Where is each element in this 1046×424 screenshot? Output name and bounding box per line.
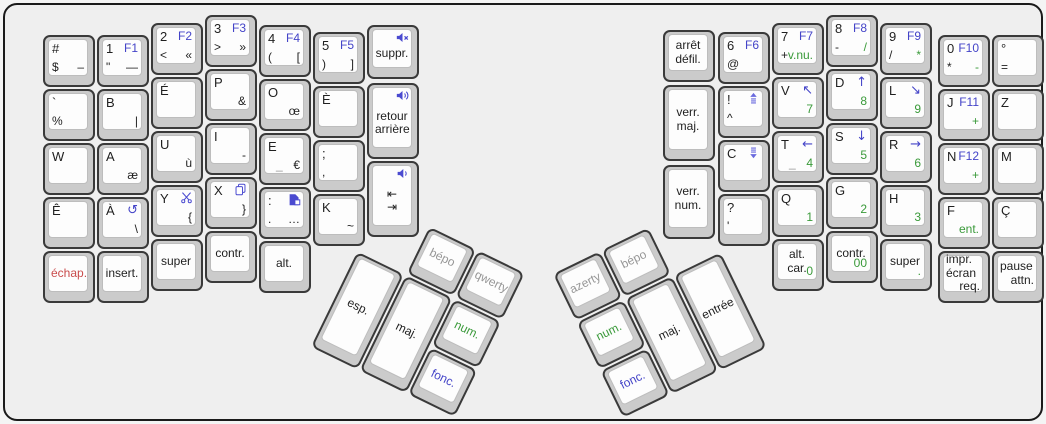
key-layer-num-left-cap: num. bbox=[441, 305, 493, 356]
key-3[interactable]: 3F3>» bbox=[205, 15, 257, 67]
key-dollar-label-tl: # bbox=[52, 42, 59, 55]
key-j-label-br: + bbox=[972, 115, 979, 127]
key-x[interactable]: X} bbox=[205, 177, 257, 229]
key-semicolon-label-tl: ; bbox=[322, 147, 326, 160]
key-c-cap: C bbox=[723, 144, 763, 181]
key-t-label-bc: _ bbox=[789, 157, 796, 169]
key-g-label-tl: G bbox=[835, 184, 845, 197]
key-3-label-tl: 3 bbox=[214, 22, 221, 35]
key-print-screen-line: impr. bbox=[946, 253, 980, 266]
key-space-line: esp. bbox=[340, 293, 376, 320]
key-t-cap: T←_4 bbox=[777, 135, 817, 172]
key-a-grave-label-tr: ↺ bbox=[127, 204, 138, 217]
key-e[interactable]: E_€ bbox=[259, 133, 311, 185]
key-super-left-cap: super bbox=[156, 243, 196, 280]
key-w-cap: W bbox=[48, 147, 88, 184]
key-1-label-tl: 1 bbox=[106, 42, 113, 55]
key-a-cap: Aæ bbox=[102, 147, 142, 184]
key-alt-left-cap: alt. bbox=[264, 245, 304, 282]
key-2-label-tl: 2 bbox=[160, 30, 167, 43]
key-j-label-tl: J bbox=[947, 96, 954, 109]
key-colon-label-br: … bbox=[288, 213, 300, 225]
key-3-label-bl: > bbox=[214, 41, 221, 53]
key-tab-cap: ⇤⇥ bbox=[372, 165, 412, 226]
key-o-cap: Oœ bbox=[264, 83, 304, 120]
key-t[interactable]: T←_4 bbox=[772, 131, 824, 183]
key-layer-num-left-center-label: num. bbox=[442, 306, 491, 354]
key-semicolon[interactable]: ;, bbox=[313, 140, 365, 192]
key-q[interactable]: Q1 bbox=[772, 185, 824, 237]
key-backspace-line: arrière bbox=[375, 123, 409, 136]
key-pause[interactable]: pauseattn. bbox=[992, 251, 1044, 303]
key-semicolon-cap: ;, bbox=[318, 144, 358, 181]
key-u[interactable]: Uù bbox=[151, 131, 203, 183]
key-z-cap: Z bbox=[997, 93, 1037, 130]
key-6-label-tr: F6 bbox=[745, 39, 759, 51]
key-altgr-line: alt. bbox=[780, 248, 814, 261]
key-super-right-line: super bbox=[888, 255, 922, 268]
key-num-lock-center-label: verr.num. bbox=[669, 170, 707, 227]
key-2-cap: 2F2<« bbox=[156, 27, 196, 64]
key-l[interactable]: L↘9 bbox=[880, 77, 932, 129]
keyboard-case: #$–`%WÊéchap.1F1"—B|AæÀ↺\insert.2F2<«ÉUù… bbox=[3, 3, 1043, 421]
key-layer-qwerty-line: qwerty bbox=[472, 268, 508, 295]
key-e-cap: E_€ bbox=[264, 137, 304, 174]
key-layer-fn-left-center-label: fonc. bbox=[419, 355, 468, 403]
key-delete-line: suppr. bbox=[375, 47, 409, 60]
key-7[interactable]: 7F7+v.nu. bbox=[772, 23, 824, 75]
copy-icon bbox=[234, 183, 247, 196]
key-tab[interactable]: ⇤⇥ bbox=[367, 161, 419, 237]
key-9[interactable]: 9F9/* bbox=[880, 23, 932, 75]
key-9-label-tr: F9 bbox=[907, 30, 921, 42]
key-6-cap: 6F6@ bbox=[723, 36, 763, 73]
key-q-label-tl: Q bbox=[781, 192, 791, 205]
key-7-label-br: v.nu. bbox=[788, 49, 813, 61]
key-super-right[interactable]: .super bbox=[880, 239, 932, 291]
key-d-label-tr: ↑ bbox=[856, 76, 867, 89]
key-y[interactable]: Y{ bbox=[151, 185, 203, 237]
key-apostrophe-label-bl: ' bbox=[727, 220, 729, 232]
key-percent-label-bl: % bbox=[52, 115, 63, 127]
key-colon-label-tl: : bbox=[268, 194, 272, 207]
key-n-cap: NF12+ bbox=[943, 147, 983, 184]
key-5-label-bl: ) bbox=[322, 58, 326, 70]
key-i[interactable]: I- bbox=[205, 123, 257, 175]
key-layer-bepo-left-line: bépo bbox=[424, 244, 460, 271]
key-tab-line: ⇤ bbox=[375, 188, 409, 201]
key-t-label-tl: T bbox=[781, 138, 789, 151]
key-layer-fn-right-cap: fonc. bbox=[607, 355, 659, 406]
key-delete-cap: suppr. bbox=[372, 29, 412, 68]
key-print-screen-center-label: impr.écranreq. bbox=[944, 256, 982, 291]
key-layer-fn-right-line: fonc. bbox=[614, 367, 650, 394]
key-h[interactable]: H3 bbox=[880, 185, 932, 237]
key-insert-center-label: insert. bbox=[103, 256, 141, 291]
key-dollar-label-br: – bbox=[77, 61, 84, 73]
key-f-cap: Fent. bbox=[943, 201, 983, 238]
key-p-label-tl: P bbox=[214, 76, 223, 89]
key-e-acute-label-tl: É bbox=[160, 84, 169, 97]
key-layer-azerty-cap: azerty bbox=[559, 258, 611, 309]
key-layer-bepo-left-center-label: bépo bbox=[417, 234, 466, 282]
key-scroll-lock-line: défil. bbox=[671, 53, 705, 66]
key-v-label-tr: ↖ bbox=[802, 84, 813, 97]
key-z[interactable]: Z bbox=[992, 89, 1044, 141]
key-4-cap: 4F4([ bbox=[264, 29, 304, 66]
key-scroll-lock-line: arrêt bbox=[671, 39, 705, 52]
key-9-cap: 9F9/* bbox=[885, 27, 925, 64]
key-8[interactable]: 8F8-/ bbox=[826, 15, 878, 67]
key-u-label-br: ù bbox=[185, 157, 192, 169]
key-layer-bepo-right-line: bépo bbox=[616, 246, 652, 273]
key-e-label-bc: _ bbox=[276, 159, 283, 171]
key-caps-lock-cap: verr.maj. bbox=[668, 89, 708, 150]
key-d[interactable]: D↑8 bbox=[826, 69, 878, 121]
key-t-label-br: 4 bbox=[806, 157, 813, 169]
key-insert-line: insert. bbox=[105, 267, 139, 280]
key-2-label-tr: F2 bbox=[178, 30, 192, 42]
key-c-label-tl: C bbox=[727, 147, 736, 160]
key-4-label-tr: F4 bbox=[286, 32, 300, 44]
key-h-cap: H3 bbox=[885, 189, 925, 226]
key-escape[interactable]: échap. bbox=[43, 251, 95, 303]
key-ctrl-right[interactable]: 00contr. bbox=[826, 231, 878, 283]
key-2[interactable]: 2F2<« bbox=[151, 23, 203, 75]
key-9-label-tl: 9 bbox=[889, 30, 896, 43]
key-4-label-bl: ( bbox=[268, 51, 272, 63]
key-5-label-tr: F5 bbox=[340, 39, 354, 51]
key-exclamation-label-tl: ! bbox=[727, 93, 731, 106]
key-altgr[interactable]: 0alt.car. bbox=[772, 239, 824, 291]
volume-up-icon bbox=[396, 89, 409, 102]
key-a-grave-cap: À↺\ bbox=[102, 201, 142, 238]
key-s[interactable]: S↓5 bbox=[826, 123, 878, 175]
key-layer-azerty-line: azerty bbox=[567, 270, 603, 297]
key-l-label-tr: ↘ bbox=[910, 84, 921, 97]
key-r-label-br: 6 bbox=[914, 157, 921, 169]
key-e-grave-label-tl: È bbox=[322, 93, 331, 106]
key-super-right-cap: .super bbox=[885, 243, 925, 280]
key-layer-azerty-center-label: azerty bbox=[561, 259, 610, 307]
key-scroll-lock-cap: arrêtdéfil. bbox=[668, 34, 708, 71]
key-equals-label-tl: ° bbox=[1001, 42, 1006, 55]
key-p[interactable]: P& bbox=[205, 69, 257, 121]
key-r-cap: R→6 bbox=[885, 135, 925, 172]
key-e-label-tl: E bbox=[268, 140, 277, 153]
key-altgr-line: car. bbox=[780, 262, 814, 275]
key-alt-left-line: alt. bbox=[267, 257, 301, 270]
key-p-cap: P& bbox=[210, 73, 250, 110]
key-scroll-lock-center-label: arrêtdéfil. bbox=[669, 35, 707, 70]
key-percent-label-tl: ` bbox=[52, 96, 56, 109]
key-v-label-br: 7 bbox=[806, 103, 813, 115]
key-3-cap: 3F3>» bbox=[210, 19, 250, 56]
key-g-cap: G2 bbox=[831, 181, 871, 218]
key-num-lock-line: num. bbox=[671, 199, 705, 212]
key-c-cedilla-cap: Ç bbox=[997, 201, 1037, 238]
key-e-acute[interactable]: É bbox=[151, 77, 203, 129]
key-layer-num-right-cap: num. bbox=[583, 306, 635, 357]
key-ctrl-right-line: contr. bbox=[834, 247, 868, 260]
key-4-label-br: [ bbox=[297, 51, 300, 63]
key-l-cap: L↘9 bbox=[885, 81, 925, 118]
key-apostrophe-label-tl: ? bbox=[727, 201, 734, 214]
key-j[interactable]: JF11+ bbox=[938, 89, 990, 141]
key-enter-line: entrée bbox=[700, 295, 736, 322]
key-8-label-br: / bbox=[864, 41, 867, 53]
key-1-cap: 1F1"— bbox=[102, 39, 142, 76]
key-y-cap: Y{ bbox=[156, 189, 196, 226]
key-s-label-br: 5 bbox=[860, 149, 867, 161]
key-d-label-tl: D bbox=[835, 76, 844, 89]
key-colon[interactable]: :.… bbox=[259, 187, 311, 239]
key-shift-left-line: maj. bbox=[388, 317, 424, 344]
key-f-label-br: ent. bbox=[959, 223, 979, 235]
key-o-label-tl: O bbox=[268, 86, 278, 99]
key-w-label-tl: W bbox=[52, 150, 64, 163]
key-q-label-br: 1 bbox=[806, 211, 813, 223]
key-colon-label-bl: . bbox=[268, 213, 271, 225]
key-k-cap: K~ bbox=[318, 198, 358, 235]
mute-icon bbox=[396, 31, 409, 44]
key-1[interactable]: 1F1"— bbox=[97, 35, 149, 87]
key-a-grave[interactable]: À↺\ bbox=[97, 197, 149, 249]
key-num-lock[interactable]: verr.num. bbox=[663, 165, 715, 239]
key-5-label-br: ] bbox=[351, 58, 354, 70]
key-layer-bepo-right-center-label: bépo bbox=[609, 236, 658, 284]
cut-icon bbox=[180, 191, 193, 204]
key-b-cap: B| bbox=[102, 93, 142, 130]
key-num-lock-line: verr. bbox=[671, 185, 705, 198]
key-layer-qwerty-cap: qwerty bbox=[465, 256, 517, 307]
key-6-label-bl: @ bbox=[727, 58, 739, 70]
key-i-cap: I- bbox=[210, 127, 250, 164]
key-super-left-line: super bbox=[159, 255, 193, 268]
key-print-screen-line: req. bbox=[946, 280, 980, 293]
key-equals[interactable]: °= bbox=[992, 35, 1044, 87]
key-0-cap: 0F10*- bbox=[943, 39, 983, 76]
page-down-icon bbox=[747, 146, 760, 159]
key-8-label-tr: F8 bbox=[853, 22, 867, 34]
key-h-label-tl: H bbox=[889, 192, 898, 205]
key-7-label-tr: F7 bbox=[799, 30, 813, 42]
key-percent[interactable]: `% bbox=[43, 89, 95, 141]
key-1-label-br: — bbox=[126, 61, 138, 73]
key-c[interactable]: C bbox=[718, 140, 770, 192]
key-e-label-br: € bbox=[293, 159, 300, 171]
key-e-circumflex[interactable]: Ê bbox=[43, 197, 95, 249]
key-alt-left[interactable]: alt. bbox=[259, 241, 311, 293]
key-0[interactable]: 0F10*- bbox=[938, 35, 990, 87]
key-a-label-tl: A bbox=[106, 150, 115, 163]
key-8-cap: 8F8-/ bbox=[831, 19, 871, 56]
key-dollar[interactable]: #$– bbox=[43, 35, 95, 87]
key-l-label-tl: L bbox=[889, 84, 896, 97]
key-2-label-bl: < bbox=[160, 49, 167, 61]
key-z-label-tl: Z bbox=[1001, 96, 1009, 109]
key-e-circumflex-cap: Ê bbox=[48, 201, 88, 238]
key-caps-lock[interactable]: verr.maj. bbox=[663, 85, 715, 161]
key-k[interactable]: K~ bbox=[313, 194, 365, 246]
key-ctrl-right-cap: 00contr. bbox=[831, 235, 871, 272]
key-exclamation-label-bl: ^ bbox=[727, 112, 733, 124]
key-layer-bepo-left-cap: bépo bbox=[416, 232, 468, 283]
key-j-cap: JF11+ bbox=[943, 93, 983, 130]
key-n-label-tl: N bbox=[947, 150, 956, 163]
key-k-label-br: ~ bbox=[347, 220, 354, 232]
key-q-cap: Q1 bbox=[777, 189, 817, 226]
key-y-label-tl: Y bbox=[160, 192, 169, 205]
key-r-label-tl: R bbox=[889, 138, 898, 151]
key-print-screen-line: écran bbox=[946, 267, 980, 280]
key-b[interactable]: B| bbox=[97, 89, 149, 141]
key-j-label-tr: F11 bbox=[959, 96, 979, 108]
key-super-left[interactable]: super bbox=[151, 239, 203, 291]
key-0-label-br: - bbox=[975, 61, 979, 73]
key-5[interactable]: 5F5)] bbox=[313, 32, 365, 84]
key-backspace[interactable]: retourarrière bbox=[367, 83, 419, 159]
key-9-label-bl: / bbox=[889, 49, 892, 61]
key-layer-fn-right-center-label: fonc. bbox=[608, 356, 657, 404]
key-layer-bepo-right-cap: bépo bbox=[608, 234, 660, 285]
key-super-left-center-label: super bbox=[157, 244, 195, 279]
key-x-cap: X} bbox=[210, 181, 250, 218]
key-alt-left-center-label: alt. bbox=[265, 246, 303, 281]
key-w[interactable]: W bbox=[43, 143, 95, 195]
key-v-cap: V↖7 bbox=[777, 81, 817, 118]
key-2-label-br: « bbox=[185, 49, 192, 61]
key-d-cap: D↑8 bbox=[831, 73, 871, 110]
key-a-label-br: æ bbox=[127, 169, 138, 181]
key-altgr-center-label: alt.car. bbox=[778, 244, 816, 279]
key-tab-line: ⇥ bbox=[375, 201, 409, 214]
key-o-label-br: œ bbox=[289, 105, 300, 117]
key-u-cap: Uù bbox=[156, 135, 196, 172]
key-pause-center-label: pauseattn. bbox=[998, 256, 1036, 291]
key-exclamation[interactable]: !^ bbox=[718, 86, 770, 138]
key-c-cedilla[interactable]: Ç bbox=[992, 197, 1044, 249]
key-pause-line: attn. bbox=[1000, 274, 1034, 287]
key-n[interactable]: NF12+ bbox=[938, 143, 990, 195]
key-insert-cap: insert. bbox=[102, 255, 142, 292]
key-apostrophe[interactable]: ?' bbox=[718, 194, 770, 246]
key-l-label-br: 9 bbox=[914, 103, 921, 115]
key-e-grave-cap: È bbox=[318, 90, 358, 127]
key-f-label-tl: F bbox=[947, 204, 955, 217]
key-v-label-tl: V bbox=[781, 84, 790, 97]
key-s-label-tr: ↓ bbox=[856, 130, 867, 143]
key-escape-center-label: échap. bbox=[49, 256, 87, 291]
key-x-label-tl: X bbox=[214, 184, 223, 197]
key-x-label-br: } bbox=[242, 203, 246, 215]
key-6[interactable]: 6F6@ bbox=[718, 32, 770, 84]
key-layer-num-right-center-label: num. bbox=[584, 308, 633, 356]
key-c-cedilla-label-tl: Ç bbox=[1001, 204, 1010, 217]
key-m[interactable]: M bbox=[992, 143, 1044, 195]
key-0-label-bl: * bbox=[947, 61, 952, 73]
key-escape-cap: échap. bbox=[48, 255, 88, 292]
key-scroll-lock[interactable]: arrêtdéfil. bbox=[663, 30, 715, 82]
key-t-label-tr: ← bbox=[802, 138, 813, 151]
key-dollar-cap: #$– bbox=[48, 39, 88, 76]
key-y-label-br: { bbox=[188, 211, 192, 223]
key-e-circumflex-label-tl: Ê bbox=[52, 204, 61, 217]
key-caps-lock-line: maj. bbox=[671, 120, 705, 133]
key-7-label-tl: 7 bbox=[781, 30, 788, 43]
key-6-label-tl: 6 bbox=[727, 39, 734, 52]
key-ctrl-left[interactable]: contr. bbox=[205, 231, 257, 283]
key-e-grave[interactable]: È bbox=[313, 86, 365, 138]
key-layer-num-left-line: num. bbox=[449, 317, 485, 344]
key-layer-qwerty-center-label: qwerty bbox=[466, 257, 515, 305]
key-pause-line: pause bbox=[1000, 260, 1034, 273]
key-r[interactable]: R→6 bbox=[880, 131, 932, 183]
key-exclamation-cap: !^ bbox=[723, 90, 763, 127]
key-super-right-center-label: super bbox=[886, 244, 924, 279]
key-print-screen-cap: impr.écranreq. bbox=[943, 255, 983, 292]
key-a-grave-label-br: \ bbox=[135, 223, 138, 235]
key-pause-cap: pauseattn. bbox=[997, 255, 1037, 292]
key-i-label-br: - bbox=[242, 149, 246, 161]
key-ctrl-right-center-label: contr. bbox=[832, 236, 870, 271]
key-backspace-cap: retourarrière bbox=[372, 87, 412, 148]
key-4[interactable]: 4F4([ bbox=[259, 25, 311, 77]
key-d-label-br: 8 bbox=[860, 95, 867, 107]
key-ctrl-left-center-label: contr. bbox=[211, 236, 249, 271]
key-caps-lock-line: verr. bbox=[671, 106, 705, 119]
key-escape-line: échap. bbox=[51, 267, 85, 280]
key-g[interactable]: G2 bbox=[826, 177, 878, 229]
key-f[interactable]: Fent. bbox=[938, 197, 990, 249]
key-caps-lock-center-label: verr.maj. bbox=[669, 90, 707, 149]
key-u-label-tl: U bbox=[160, 138, 169, 151]
key-0-label-tr: F10 bbox=[958, 42, 979, 54]
key-o[interactable]: Oœ bbox=[259, 79, 311, 131]
key-layer-fn-left-cap: fonc. bbox=[417, 353, 469, 404]
key-s-cap: S↓5 bbox=[831, 127, 871, 164]
key-ctrl-left-line: contr. bbox=[213, 247, 247, 260]
key-n-label-br: + bbox=[972, 169, 979, 181]
key-a[interactable]: Aæ bbox=[97, 143, 149, 195]
key-layer-num-right-line: num. bbox=[591, 318, 627, 345]
key-7-cap: 7F7+v.nu. bbox=[777, 27, 817, 64]
key-dollar-label-bl: $ bbox=[52, 61, 59, 73]
key-8-label-bl: - bbox=[835, 41, 839, 53]
key-equals-cap: °= bbox=[997, 39, 1037, 76]
key-a-grave-label-tl: À bbox=[106, 204, 115, 217]
key-k-label-tl: K bbox=[322, 201, 331, 214]
key-9-label-br: * bbox=[916, 49, 921, 61]
key-apostrophe-cap: ?' bbox=[723, 198, 763, 235]
key-m-cap: M bbox=[997, 147, 1037, 184]
key-print-screen[interactable]: impr.écranreq. bbox=[938, 251, 990, 303]
key-delete[interactable]: suppr. bbox=[367, 25, 419, 79]
key-b-label-br: | bbox=[135, 115, 138, 127]
key-3-label-br: » bbox=[239, 41, 246, 53]
key-semicolon-label-bl: , bbox=[322, 166, 325, 178]
key-colon-cap: :.… bbox=[264, 191, 304, 228]
key-s-label-tl: S bbox=[835, 130, 844, 143]
key-layer-fn-left-line: fonc. bbox=[425, 365, 461, 392]
key-i-label-tl: I bbox=[214, 130, 218, 143]
volume-down-icon bbox=[396, 167, 409, 180]
key-r-label-tr: → bbox=[910, 138, 921, 151]
key-v[interactable]: V↖7 bbox=[772, 77, 824, 129]
key-4-label-tl: 4 bbox=[268, 32, 275, 45]
page-up-icon bbox=[747, 92, 760, 105]
key-insert[interactable]: insert. bbox=[97, 251, 149, 303]
